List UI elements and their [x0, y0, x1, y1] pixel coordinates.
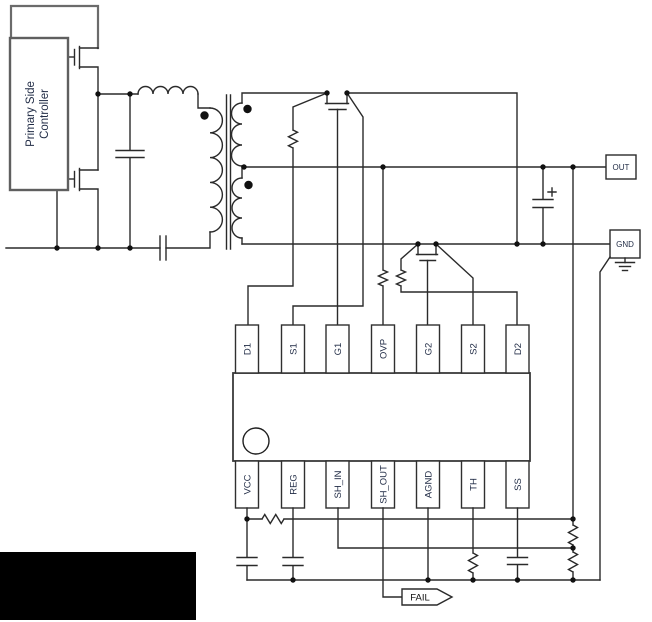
secondary-winding-bottom-icon — [232, 178, 242, 238]
out-terminal-label: OUT — [613, 163, 630, 172]
fail-flag: FAIL — [402, 589, 452, 605]
vcc-capacitor-icon — [237, 558, 257, 581]
secondary-top-polarity-dot — [243, 105, 251, 113]
primary-side: Primary Side Controller — [6, 6, 210, 260]
secondary-bottom-polarity-dot — [244, 181, 252, 189]
sync-rectifier-2-mosfet-icon — [417, 244, 438, 325]
sync-rectifier-1-mosfet-icon — [326, 93, 349, 325]
sh-out-wire — [383, 508, 402, 597]
resonant-capacitor-icon — [116, 94, 144, 248]
pin-sh-in-label: SH_IN — [333, 470, 344, 498]
out-terminal: OUT — [606, 155, 636, 179]
pin-g2-label: G2 — [424, 343, 435, 356]
schematic-page: Primary Side Controller — [0, 0, 652, 622]
plus-sign-icon — [548, 188, 556, 196]
s1-wire — [293, 93, 363, 325]
series-capacitor-icon — [160, 236, 166, 260]
fail-flag-label: FAIL — [410, 593, 430, 604]
gnd-terminal: GND — [600, 230, 640, 580]
d1-wire — [248, 93, 327, 325]
resonant-inductor-icon — [138, 87, 198, 95]
primary-winding-icon — [210, 108, 222, 232]
reg-capacitor-icon — [283, 558, 303, 581]
pin-agnd-label: AGND — [424, 471, 435, 499]
gnd-terminal-label: GND — [616, 240, 634, 249]
ss-capacitor-icon — [508, 558, 528, 581]
redaction-box — [0, 552, 196, 620]
ic-body — [233, 373, 530, 461]
ic-bottom-network — [237, 508, 600, 597]
controller-label-line2: Controller — [39, 89, 51, 139]
primary-polarity-dot — [200, 111, 208, 119]
controller-ic: D1 S1 G1 OVP G2 S2 D2 VCC REG SH_IN SH_O… — [233, 325, 530, 508]
high-side-mosfet-icon — [68, 47, 98, 95]
pin-s1-label: S1 — [289, 343, 300, 355]
ground-symbol-icon — [616, 258, 635, 271]
transformer-icon — [200, 93, 327, 249]
primary-return-wire — [166, 232, 210, 248]
controller-label-line1: Primary Side — [25, 81, 37, 147]
pin-reg-label: REG — [289, 474, 300, 495]
vcc-feed-wire — [247, 515, 573, 524]
pin-d2-label: D2 — [513, 343, 524, 355]
pin-d1-label: D1 — [243, 343, 254, 355]
core-lines — [227, 95, 231, 249]
gnd-return-wire — [600, 257, 610, 580]
ovp-wire — [379, 167, 388, 325]
pin-s2-label: S2 — [469, 343, 480, 355]
pin-ovp-label: OVP — [379, 339, 390, 359]
pin-th-label: TH — [469, 478, 480, 491]
s2-wire — [436, 244, 473, 325]
secondary-winding-top-icon — [232, 103, 243, 166]
d2-wire — [397, 244, 518, 325]
pin1-indicator-icon — [243, 428, 269, 454]
output-capacitor-icon — [533, 167, 556, 244]
pin-vcc-label: VCC — [243, 474, 254, 494]
pin-ss-label: SS — [513, 478, 524, 491]
pin-g1-label: G1 — [333, 343, 344, 356]
sr1-return-wire — [347, 93, 517, 244]
pin-sh-out-label: SH_OUT — [379, 465, 390, 504]
inductor-to-primary-wire — [198, 94, 210, 108]
ic-bottom-pins: VCC REG SH_IN SH_OUT AGND TH SS — [236, 461, 530, 508]
ic-top-pins: D1 S1 G1 OVP G2 S2 D2 — [236, 325, 530, 373]
schematic-canvas: Primary Side Controller — [0, 0, 652, 622]
junction-dots — [54, 90, 575, 582]
low-side-mosfet-icon — [68, 94, 98, 248]
sh-in-wire — [338, 508, 573, 548]
